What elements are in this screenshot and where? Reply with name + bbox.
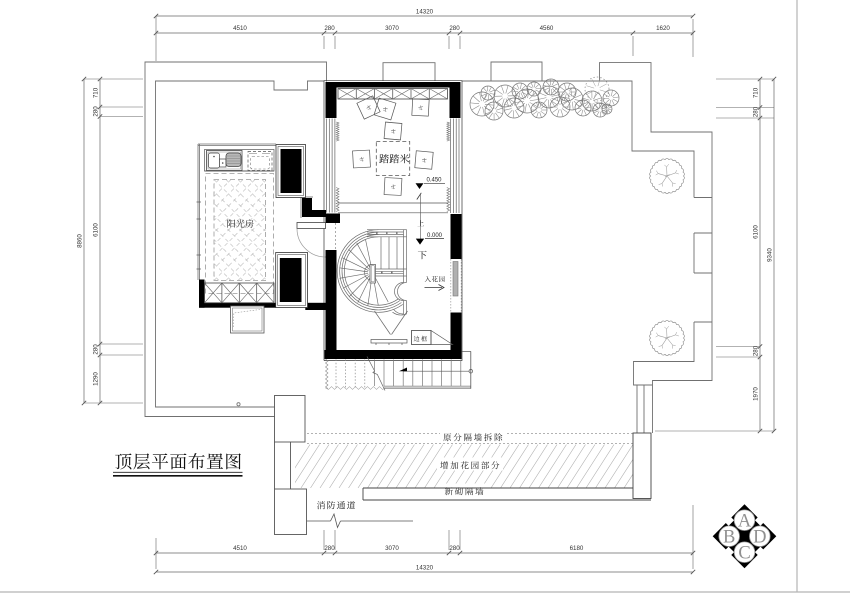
svg-text:280: 280 [753,106,760,117]
svg-text:280: 280 [753,345,760,356]
svg-text:4510: 4510 [233,25,247,32]
svg-text:9340: 9340 [767,248,774,262]
svg-text:0.000: 0.000 [427,233,443,239]
svg-text:6180: 6180 [570,545,584,552]
svg-text:6100: 6100 [753,225,760,239]
svg-text:6100: 6100 [93,223,100,237]
svg-text:3070: 3070 [385,25,399,32]
svg-text:4560: 4560 [540,25,554,32]
svg-text:1290: 1290 [93,372,100,386]
svg-text:280: 280 [93,106,100,117]
svg-text:D: D [753,528,766,548]
svg-text:1620: 1620 [656,25,670,32]
svg-text:0.450: 0.450 [426,178,442,184]
svg-text:3070: 3070 [385,545,399,552]
svg-text:280: 280 [324,25,335,32]
svg-text:B: B [723,528,735,548]
svg-text:4510: 4510 [233,545,247,552]
svg-text:280: 280 [93,344,100,355]
svg-text:280: 280 [449,25,460,32]
svg-text:710: 710 [753,87,760,98]
svg-text:14320: 14320 [416,9,434,16]
svg-text:710: 710 [93,87,100,98]
svg-text:280: 280 [449,545,460,552]
svg-text:A: A [738,512,752,532]
svg-text:C: C [738,544,750,564]
svg-text:1970: 1970 [753,387,760,401]
svg-text:14320: 14320 [416,565,434,572]
svg-text:280: 280 [324,545,335,552]
svg-text:8860: 8860 [77,234,84,248]
